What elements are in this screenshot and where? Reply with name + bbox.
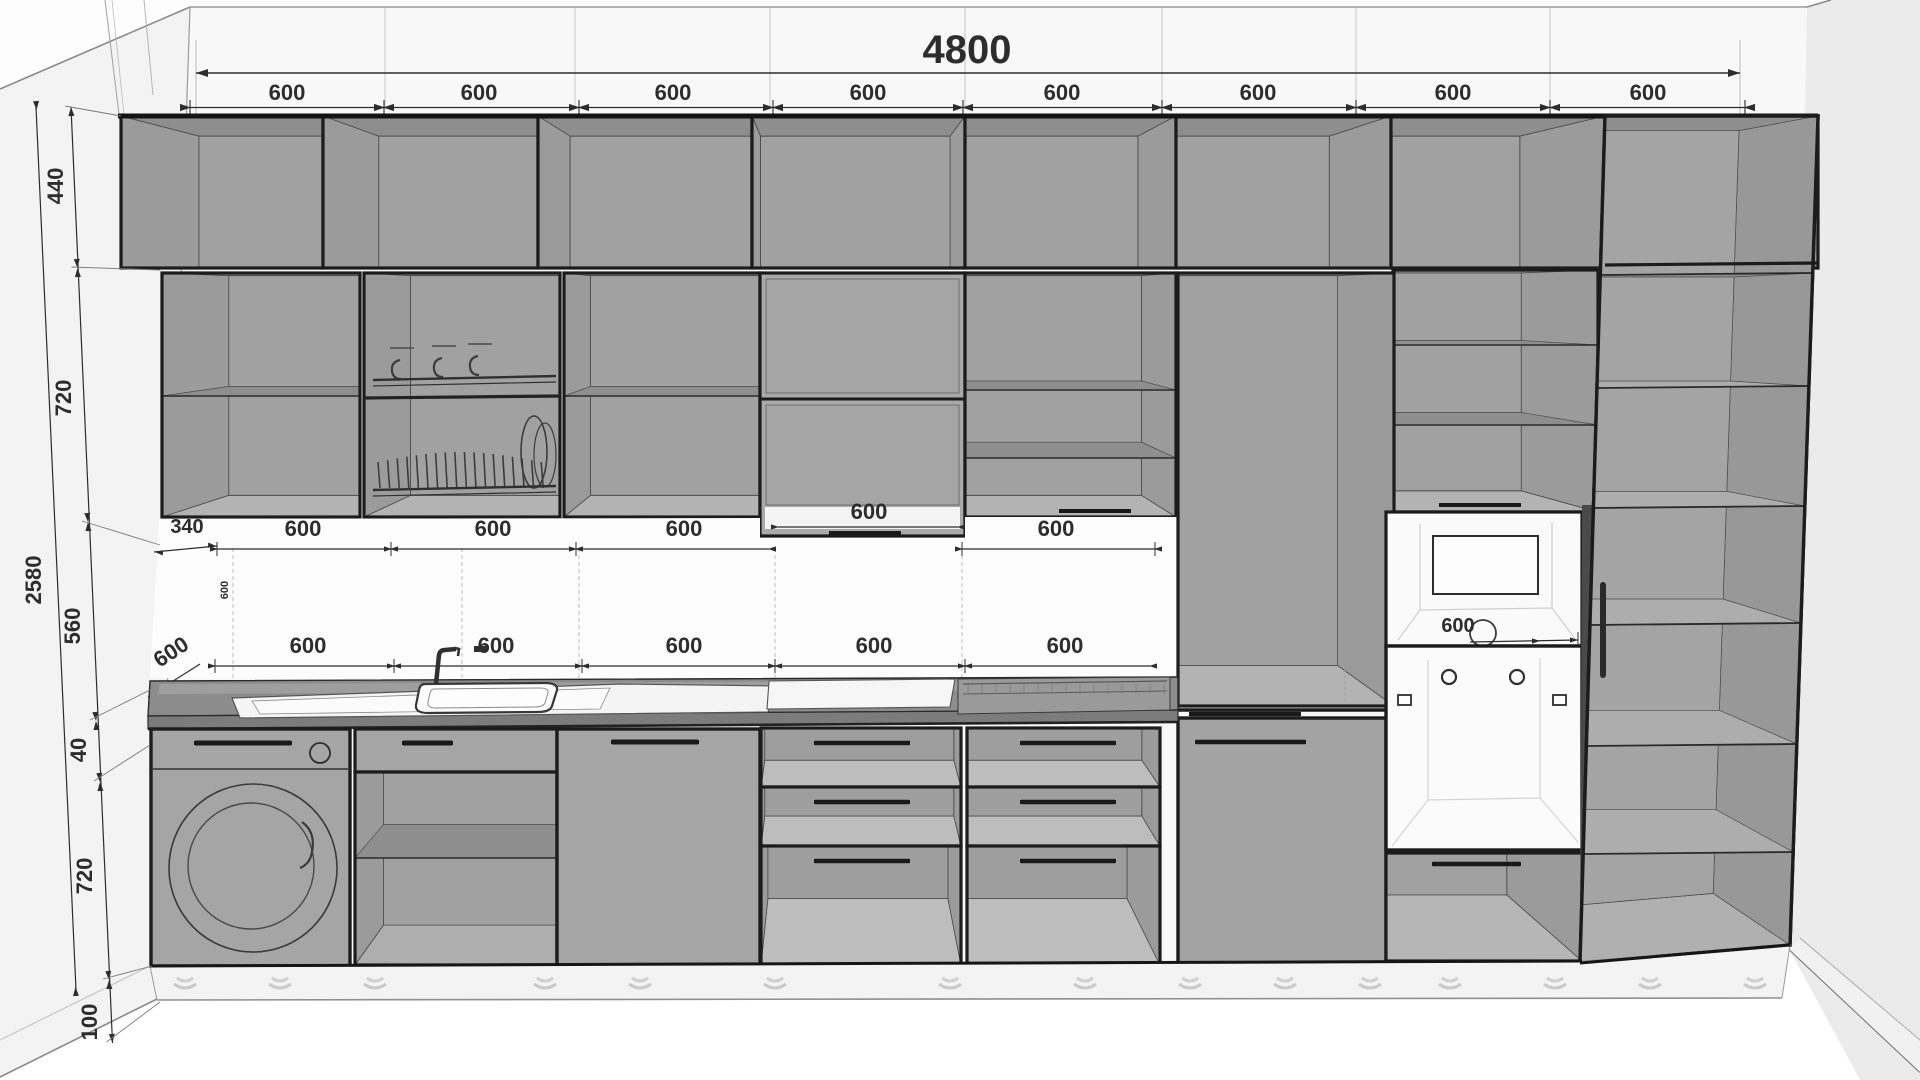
svg-text:600: 600 [851,499,888,524]
svg-text:600: 600 [1240,80,1277,105]
svg-text:600: 600 [290,633,327,658]
svg-text:720: 720 [72,858,97,895]
svg-text:560: 560 [60,608,85,645]
svg-text:2580: 2580 [21,556,46,605]
svg-text:4800: 4800 [923,28,1012,72]
svg-text:440: 440 [43,168,68,205]
svg-text:600: 600 [1044,80,1081,105]
svg-text:600: 600 [1047,633,1084,658]
svg-text:600: 600 [478,633,515,658]
svg-text:600: 600 [666,633,703,658]
svg-text:600: 600 [850,80,887,105]
svg-text:600: 600 [461,80,498,105]
svg-text:340: 340 [170,516,203,538]
svg-text:600: 600 [269,80,306,105]
svg-text:600: 600 [655,80,692,105]
svg-text:40: 40 [66,738,91,762]
svg-text:600: 600 [219,581,231,599]
svg-text:600: 600 [475,516,512,541]
svg-text:600: 600 [1441,615,1474,637]
svg-text:600: 600 [666,516,703,541]
svg-text:600: 600 [856,633,893,658]
svg-text:600: 600 [1038,516,1075,541]
svg-text:600: 600 [1630,80,1667,105]
svg-text:100: 100 [77,1004,102,1041]
svg-text:600: 600 [285,516,322,541]
svg-text:720: 720 [51,380,76,417]
svg-text:600: 600 [1435,80,1472,105]
